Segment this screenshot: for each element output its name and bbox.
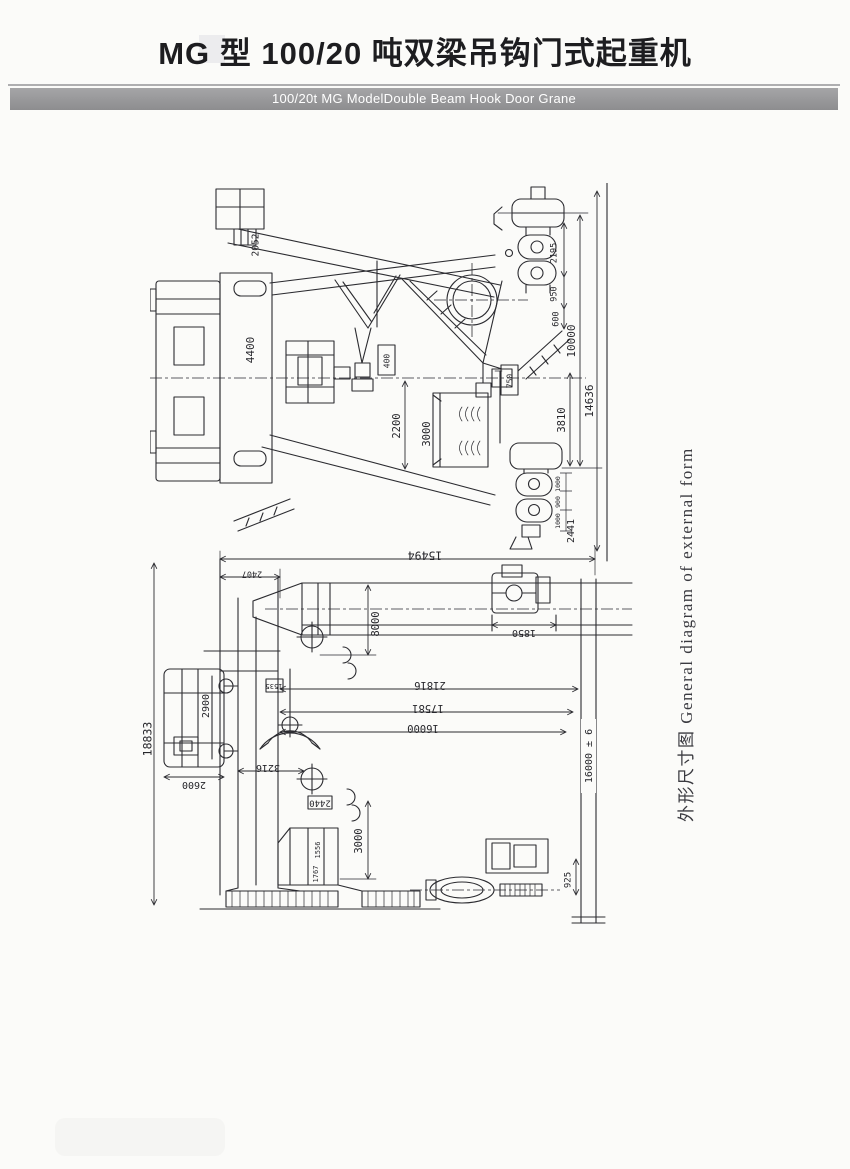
dim-2052: 2052	[251, 234, 262, 257]
dim-925: 925	[564, 872, 574, 888]
side-caption-text: 外形尺寸图 General diagram of external form	[672, 447, 697, 822]
dim-4400: 4400	[244, 337, 257, 364]
dim-1000-a: 1000	[554, 476, 562, 492]
dim-8000: 8000	[370, 611, 382, 636]
dim-2440: 2440	[309, 798, 331, 808]
dim-2200: 2200	[391, 413, 403, 438]
dim-1556: 1556	[314, 842, 322, 859]
dim-750: 750	[506, 374, 515, 389]
header-rule	[8, 84, 840, 86]
upper-drawing-end-elevation: 2052 4400 400 750 2200 3000 3810 2195 95…	[150, 183, 620, 565]
dim-900: 900	[554, 496, 562, 508]
dim-2407: 2407	[242, 569, 262, 579]
dim-21816: 21816	[414, 679, 446, 691]
dim-2900: 2900	[201, 694, 212, 718]
catalog-page: MG 型 100/20 吨双梁吊钩门式起重机 100/20t MG ModelD…	[0, 0, 850, 1169]
dim-16000-tolerance: 16000 ± 6	[584, 729, 595, 783]
dim-17581: 17581	[412, 702, 444, 714]
dim-10000: 10000	[565, 324, 578, 357]
dim-1000-b: 1000	[554, 513, 562, 529]
upper-structure-lines	[150, 183, 607, 561]
subtitle-text: 100/20t MG ModelDouble Beam Hook Door Gr…	[10, 88, 838, 110]
dim-3216: 3216	[256, 762, 280, 773]
dim-3000: 3000	[421, 421, 433, 446]
scan-smudge	[55, 1118, 225, 1156]
dim-3810: 3810	[556, 407, 568, 432]
lower-structure-lines	[164, 547, 632, 923]
dim-2600: 2600	[182, 779, 206, 790]
dim-16000: 16000	[407, 722, 439, 734]
side-caption: 外形尺寸图 General diagram of external form	[672, 822, 702, 832]
page-title: MG 型 100/20 吨双梁吊钩门式起重机	[0, 28, 850, 73]
dim-1767: 1767	[312, 866, 320, 883]
dim-18833: 18833	[141, 722, 155, 757]
lower-drawing-front-elevation: 15494 2407 18833 2900 2600 1535 3216 244…	[140, 543, 640, 933]
dim-15494: 15494	[408, 549, 443, 563]
dim-14636: 14636	[583, 384, 596, 417]
dim-400: 400	[383, 354, 392, 369]
dim-1850: 1850	[512, 627, 536, 638]
subtitle-bar: 100/20t MG ModelDouble Beam Hook Door Gr…	[10, 88, 838, 110]
dim-3000-lower: 3000	[353, 828, 365, 853]
dim-600: 600	[552, 311, 562, 326]
dim-2441: 2441	[566, 519, 577, 543]
dim-1535: 1535	[266, 682, 283, 690]
dim-950: 950	[550, 286, 560, 301]
dim-2195: 2195	[550, 243, 560, 263]
